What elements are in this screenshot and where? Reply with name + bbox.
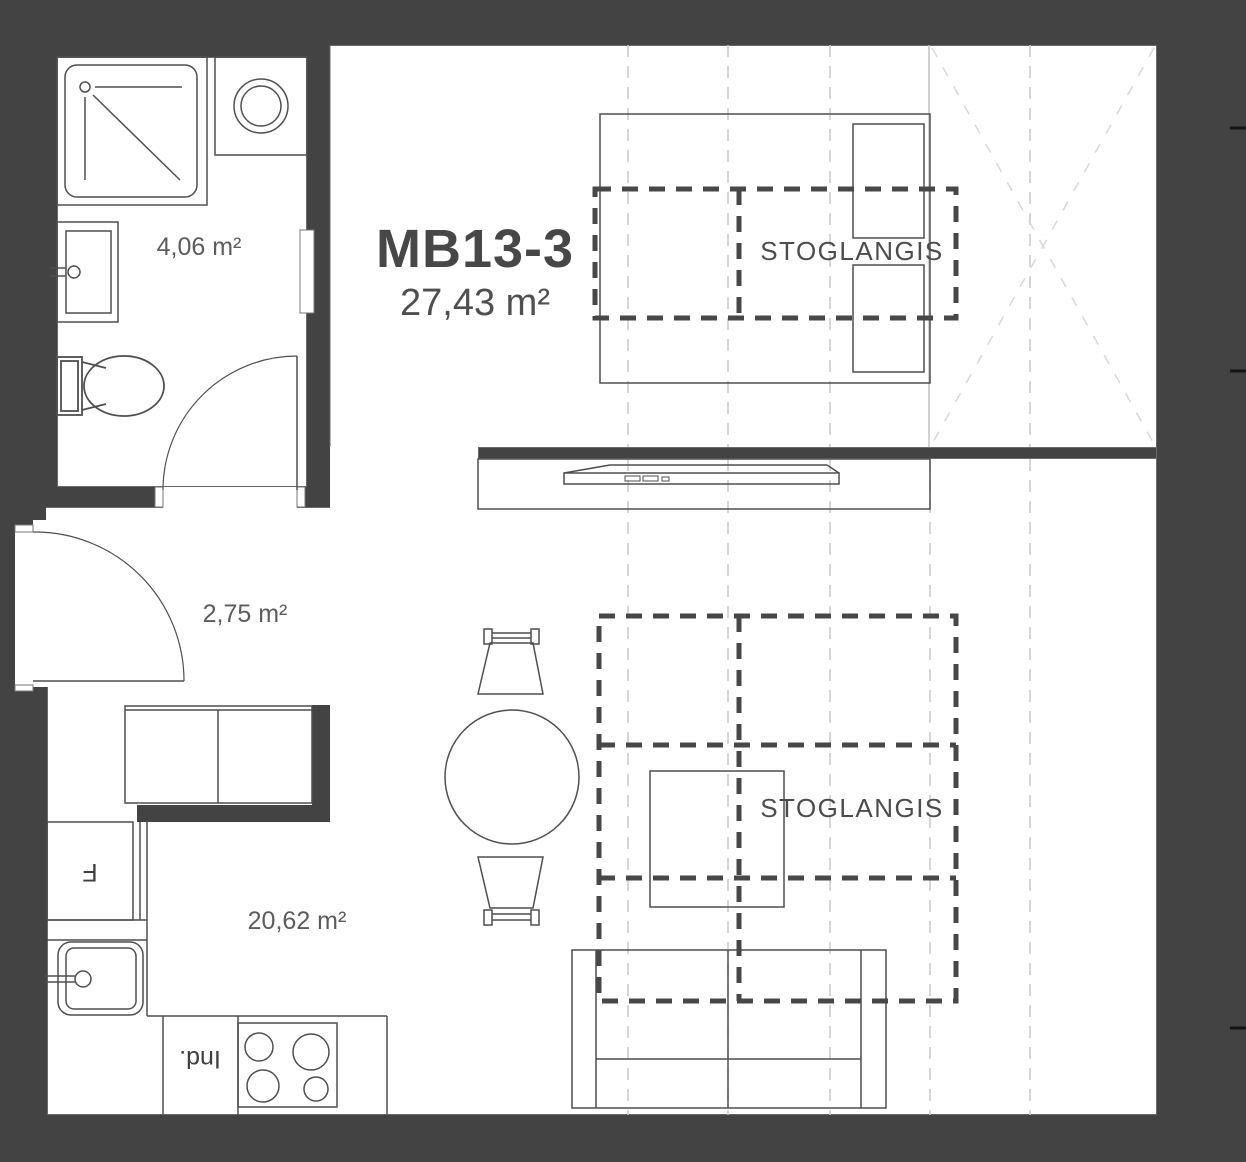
living-kitchen-area-label: 20,62 m² [232, 907, 362, 935]
apartment-title: MB13-3 [355, 220, 595, 278]
wardrobe-cross-icon [932, 48, 1154, 444]
cooktop-icon [238, 1023, 337, 1107]
washing-machine-icon [215, 57, 307, 155]
dishwasher-label: Ind. [168, 1044, 232, 1074]
shower-icon [57, 57, 207, 205]
hall-cabinet-icon [125, 706, 312, 803]
skylight-living-label: STOGLANGIS [752, 793, 952, 823]
plan-line-art [0, 0, 1246, 1162]
hall-area-label: 2,75 m² [185, 600, 305, 628]
apartment-total-area: 27,43 m² [355, 282, 595, 324]
coffee-table-icon [650, 771, 784, 907]
dimension-ticks [1230, 128, 1246, 1028]
floor-plan-canvas: MB13-3 27,43 m² 4,06 m² 2,75 m² 20,62 m²… [0, 0, 1246, 1162]
entry-door-swing-icon [33, 532, 184, 681]
fridge-label: F [70, 857, 110, 887]
sofa-icon [572, 950, 886, 1108]
dining-chair-top-icon [478, 629, 543, 694]
washbasin-icon [50, 222, 118, 322]
skylight-bedroom-label: STOGLANGIS [752, 236, 952, 266]
dining-chair-bottom-icon [478, 857, 543, 925]
bathroom-area-label: 4,06 m² [139, 233, 259, 261]
kitchen-sink-icon [45, 942, 143, 1015]
bathroom-door-swing-icon [163, 356, 297, 490]
wall-niche [300, 230, 314, 313]
dining-table-icon [445, 710, 579, 844]
tv-unit-icon [478, 459, 930, 509]
toilet-icon [57, 356, 164, 416]
grid-lines [628, 45, 1030, 1115]
